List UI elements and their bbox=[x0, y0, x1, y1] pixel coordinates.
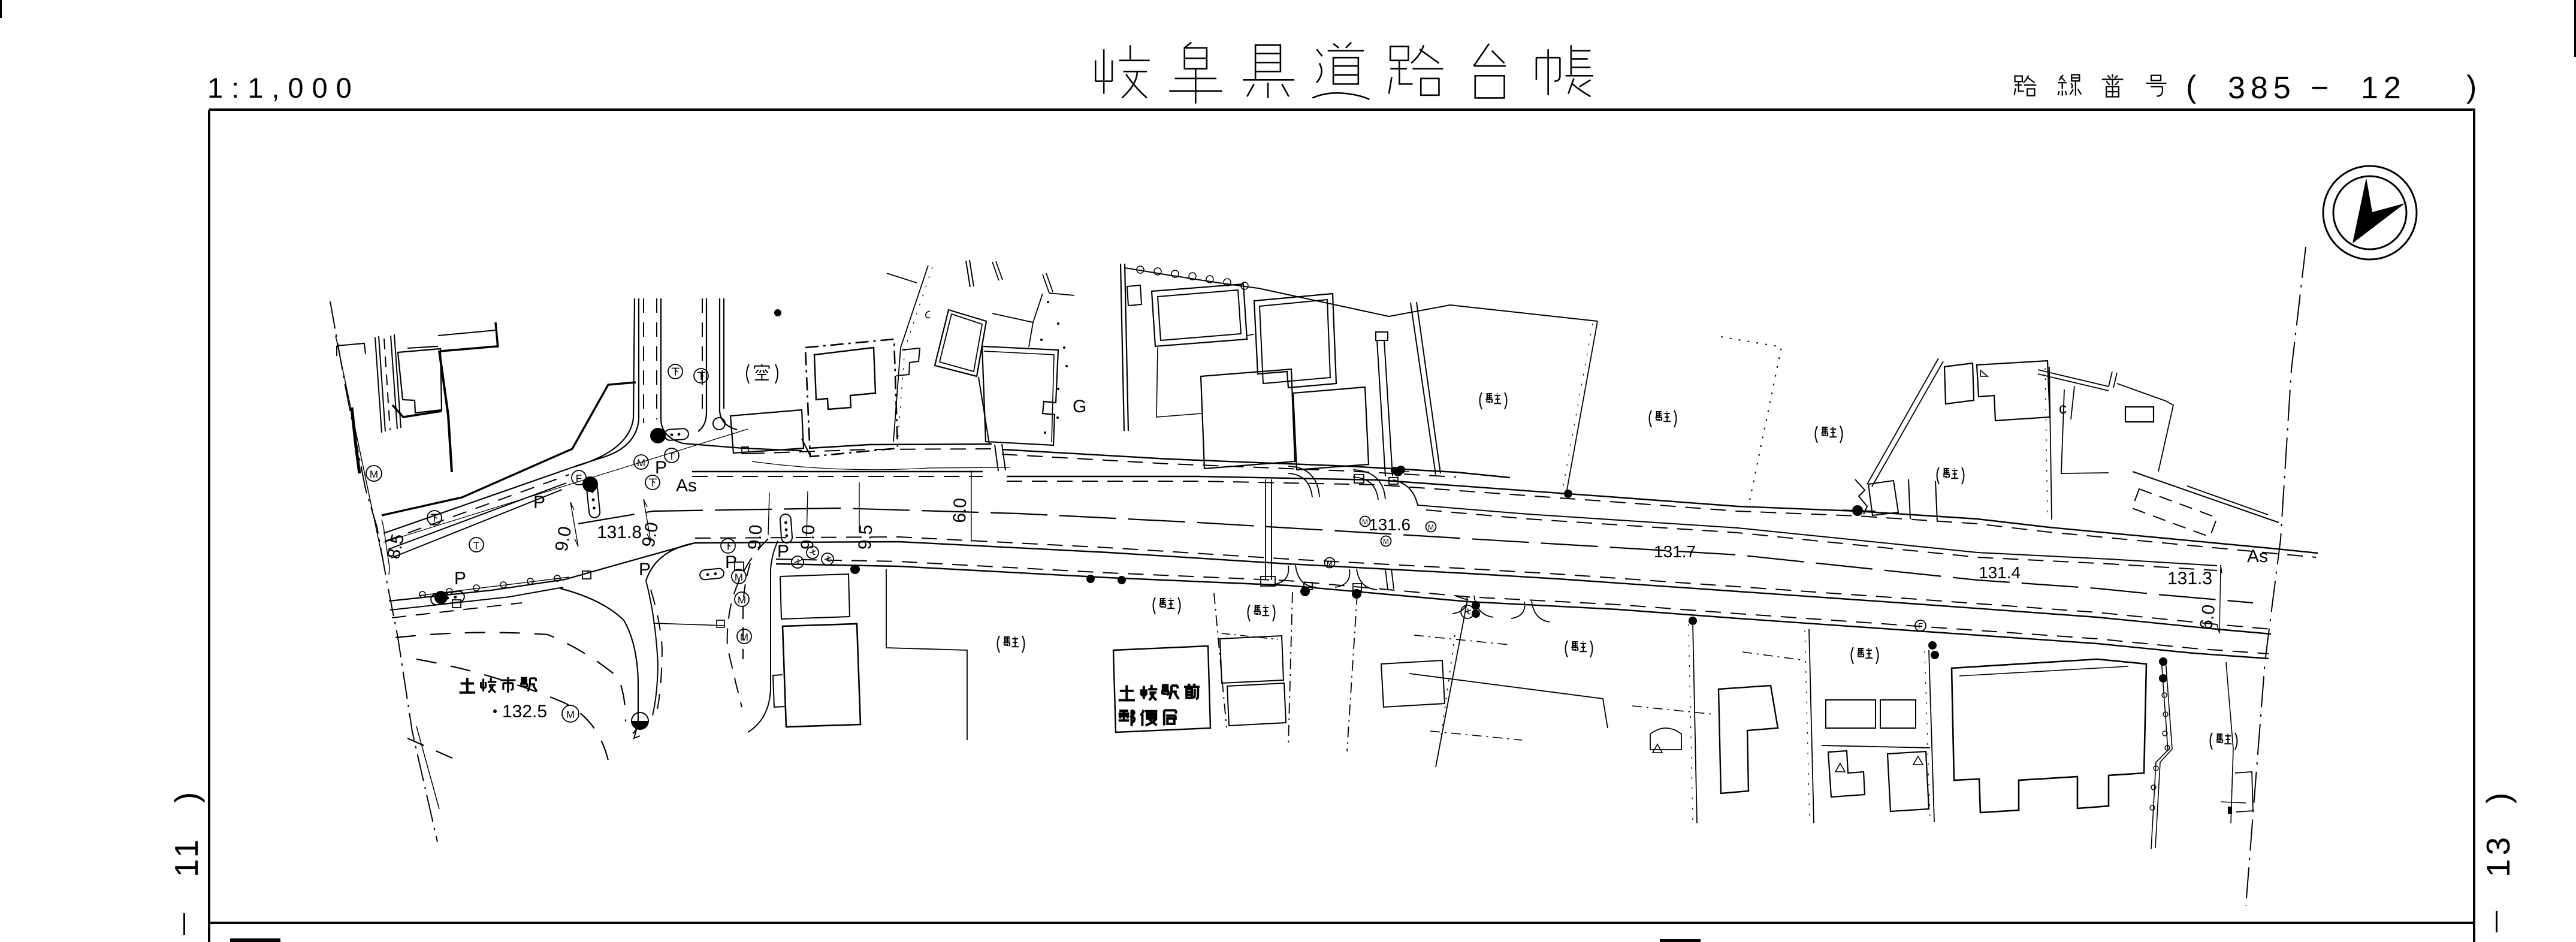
svg-text:(: ( bbox=[2186, 70, 2197, 104]
svg-text:9.0: 9.0 bbox=[798, 524, 819, 550]
svg-text:12: 12 bbox=[2361, 71, 2406, 105]
svg-text:13: 13 bbox=[2480, 834, 2517, 877]
svg-text:9.5: 9.5 bbox=[855, 524, 877, 550]
svg-text:11: 11 bbox=[168, 836, 205, 877]
svg-text:M: M bbox=[1362, 518, 1368, 526]
svg-text:F: F bbox=[1918, 621, 1923, 630]
svg-text:F: F bbox=[576, 473, 582, 484]
svg-text:P: P bbox=[533, 493, 545, 512]
svg-text:M: M bbox=[740, 632, 748, 643]
svg-text:): ) bbox=[2466, 70, 2477, 104]
svg-text:G: G bbox=[1073, 397, 1086, 416]
svg-text:132.5: 132.5 bbox=[502, 702, 547, 721]
svg-text:c: c bbox=[2059, 399, 2067, 417]
svg-text:M: M bbox=[637, 457, 645, 469]
svg-text:M: M bbox=[735, 572, 743, 583]
svg-text:131.8: 131.8 bbox=[597, 523, 642, 542]
svg-text:P: P bbox=[725, 552, 737, 572]
svg-text:6.0: 6.0 bbox=[2196, 603, 2219, 631]
svg-text:As: As bbox=[2247, 547, 2268, 566]
svg-text:M: M bbox=[1383, 538, 1389, 546]
svg-text:): ) bbox=[168, 792, 205, 803]
svg-text:131.6: 131.6 bbox=[1369, 515, 1411, 534]
svg-text:385: 385 bbox=[2228, 71, 2296, 105]
svg-text:As: As bbox=[676, 476, 697, 496]
svg-text:P: P bbox=[454, 569, 466, 588]
svg-text:P: P bbox=[655, 458, 667, 478]
svg-text:M: M bbox=[1428, 523, 1434, 532]
svg-text:−: − bbox=[2311, 71, 2329, 105]
svg-text:M: M bbox=[370, 469, 378, 480]
svg-text:6.0: 6.0 bbox=[950, 497, 970, 523]
svg-text:P: P bbox=[639, 560, 651, 579]
svg-text:M: M bbox=[1327, 559, 1333, 567]
svg-text:9.0: 9.0 bbox=[745, 524, 766, 550]
svg-text:131.3: 131.3 bbox=[2167, 569, 2212, 588]
svg-text:T: T bbox=[669, 451, 675, 462]
svg-text:M: M bbox=[566, 709, 575, 720]
svg-text:P: P bbox=[777, 542, 789, 561]
svg-text:1:1,000: 1:1,000 bbox=[207, 72, 360, 104]
svg-text:131.4: 131.4 bbox=[1979, 563, 2021, 582]
svg-text:131.7: 131.7 bbox=[1654, 542, 1696, 561]
svg-text:): ) bbox=[2480, 793, 2517, 804]
svg-text:M: M bbox=[738, 594, 746, 606]
svg-text:T: T bbox=[473, 540, 479, 551]
